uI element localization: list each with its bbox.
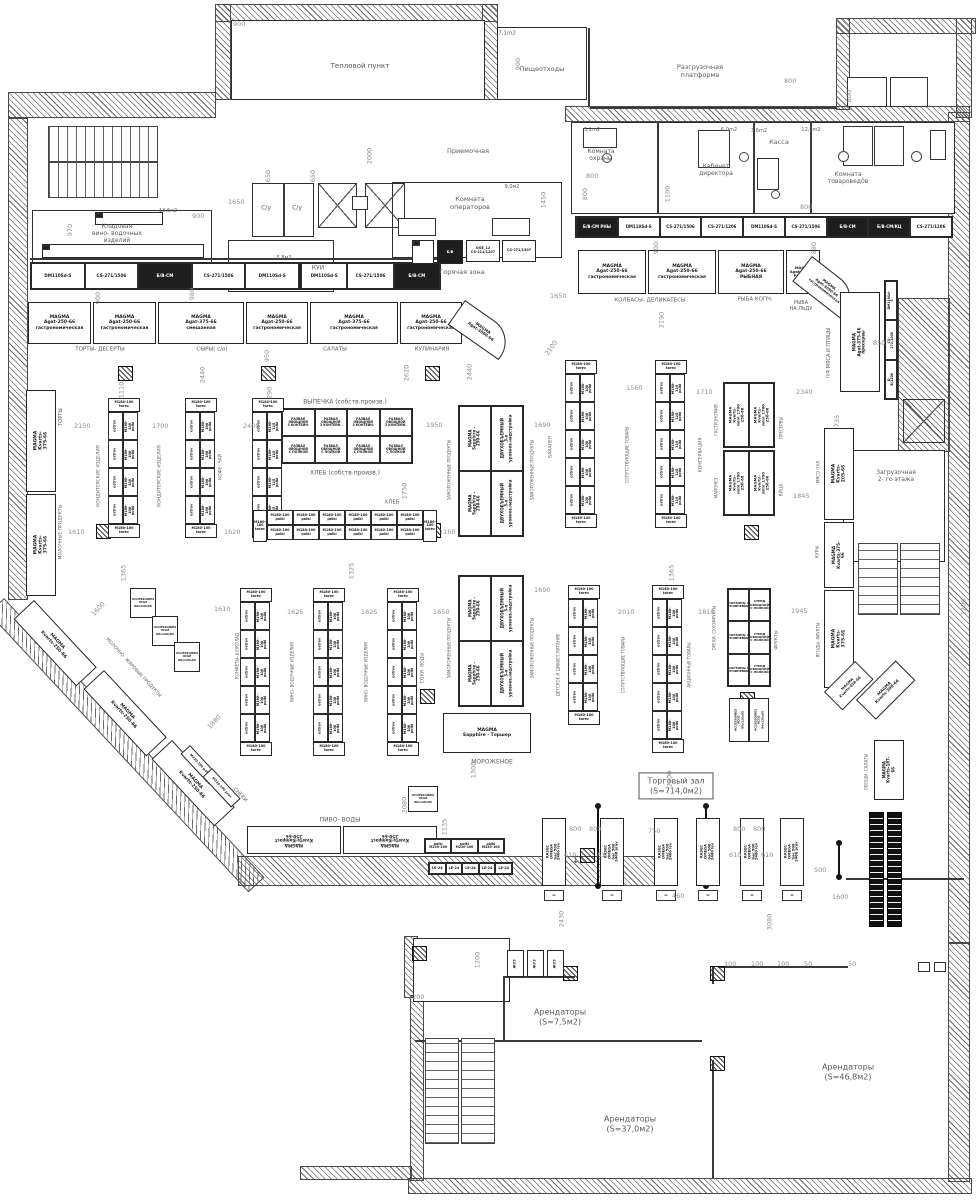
staircase <box>425 1038 459 1144</box>
dimension-label: 950 <box>263 350 271 362</box>
shelf-cell <box>413 241 420 246</box>
dimension-label: 1560 <box>626 384 643 392</box>
gondola-cell-label: M180-100 polki <box>202 504 213 517</box>
structural-column <box>744 525 759 540</box>
gondola-endcap: M180-100 torec <box>108 398 140 412</box>
shelf-cell: CS-271/1206 <box>910 217 952 237</box>
gondola-cell-label: M180-100 polki <box>323 514 342 521</box>
gondola-cell-label: M180-100 polki <box>669 607 680 620</box>
shelf-unit: MAGMA Agat-250-66 гастрономическая <box>648 250 716 294</box>
shelf-unit-label: ACCESSOIRES UCGE 80x120x85 <box>754 709 764 731</box>
shelf-unit-label: MAGMA Kvarts-375-66 <box>33 427 48 455</box>
furniture-chair <box>739 152 749 162</box>
gondola-cell-label: ostrov <box>258 448 262 460</box>
shelf-cell-label: polki M220-100 <box>429 843 447 850</box>
gondola-cell: ostrov <box>252 468 267 496</box>
shelf-unit-label: ЖУЗ <box>514 959 518 968</box>
shelf-cell: CS-271/1506 <box>192 263 246 289</box>
partition-wall <box>810 122 812 214</box>
gondola-cell-label: M180-100 polki <box>330 694 341 707</box>
plan-label: Кабинет директора <box>699 163 733 177</box>
gondola-cell-label: M180-100 polki <box>271 514 290 521</box>
shelf-unit-label: MAGMA Agat-3090-66 <box>467 318 497 343</box>
gondola-cell: M180-100 polki <box>580 486 595 514</box>
gondola-cell: ostrov <box>565 458 580 486</box>
gondola-shelf: M180-100 torecostrovM180-100 polkiostrov… <box>108 398 138 534</box>
structural-column <box>261 366 276 381</box>
gondola-endcap-label: M180-100 torec <box>254 521 266 532</box>
gondola-cell: ostrov <box>185 440 200 468</box>
gondola-cell: M180-100 polki <box>667 655 682 683</box>
gondola-endcap-label: M180-100 torec <box>424 521 436 532</box>
checkout-base: ═ <box>742 890 762 901</box>
shelf-unit: CS-271/1307 <box>502 240 536 262</box>
gondola-endcap: M180-100 torec <box>565 360 597 374</box>
gondola-endcap: M180-100 torec <box>655 514 687 528</box>
shelf-cell-label: РАЗВАЛ ОВОЩНОЙ 3 КОНТЕЙН. <box>385 418 407 428</box>
dimension-label: 2080 <box>400 797 408 814</box>
plan-label: ЯЙЦА <box>779 483 784 496</box>
gondola-cell-label: ostrov <box>661 382 665 394</box>
shelf-cell-grid: MAGMA Sapphire - 250-66ДВУХОБЪЕМНЫЙ 3-х … <box>458 405 524 537</box>
shelf-cell-label: CS-271/1506 <box>96 274 126 278</box>
gondola-cell-label: M180-125 polki <box>672 410 683 423</box>
gondola-cell-label: ostrov <box>246 694 250 706</box>
gondola-cell: ostrov <box>565 402 580 430</box>
shelf-cell-grid: РАЗВАЛ ОВОЩНОЙ 3 КОНТЕЙН.РАЗВАЛ ОВОЩНОЙ … <box>281 408 413 464</box>
gondola-cell: M180-125 polki <box>267 412 282 440</box>
shelf-cell: Б/В-СМ <box>394 263 440 289</box>
plan-label: САЛАТЫ <box>323 347 347 354</box>
shelf-cell: polki M220-100 <box>478 839 504 853</box>
gondola-cell-label: M180-125 polki <box>672 382 683 395</box>
gondola-cell: ostrov <box>565 374 580 402</box>
plan-label: 13,6м2 <box>159 208 177 214</box>
gondola-cell-label: M180-100 polki <box>271 529 290 536</box>
plan-label: КОНДИТЕРСКИЕ ИЗДЕЛИЯ <box>96 445 101 507</box>
gondola-cell-label: ostrov <box>246 722 250 734</box>
structural-column <box>563 966 578 981</box>
gondola-cell-label: M180-100 polki <box>375 514 394 521</box>
wall-segment <box>836 18 976 34</box>
plan-label: МОЛОЧНЫЕ ПРОДУКТЫ <box>58 505 63 560</box>
gondola-endcap: M180-100 torec <box>387 588 419 602</box>
gondola-cell: M180-100 polki <box>402 686 417 714</box>
shelf-unit: MAGMA Agat-250-66 РЫБНАЯ <box>718 250 784 294</box>
shelf-cell-label: ДВУХОБЪЕМНЫЙ 3-х уровнев.надстройка <box>501 585 514 632</box>
shelf-unit: OGE_12 CS-211/1207 <box>466 240 500 262</box>
dimension-label: 800 <box>586 172 598 180</box>
shelf-cell: MAGMA Kvarts-mini_1700 250-66 <box>724 451 749 515</box>
shelf-unit: ЖУЗ <box>507 950 524 977</box>
shelf-unit-label: MAGMA Agat-250-66 гастрономическая <box>101 315 149 330</box>
plan-label: 3,6m2 <box>751 128 767 134</box>
gondola-cell-label: M180-100 polki <box>404 666 415 679</box>
dimension-label: 880 <box>810 242 818 254</box>
gondola-cell: M180-125 polki <box>267 440 282 468</box>
shelf-unit: MAGMA Kvarts-187-66 <box>874 740 904 800</box>
gondola-cell-label: M180-100 polki <box>202 420 213 433</box>
shelf-unit: MAGMA Agat-3090-66 <box>448 300 516 360</box>
shelf-cell: MAGMA Sapphire - 250-66 <box>459 576 491 641</box>
gondola-cell-label: ostrov <box>319 722 323 734</box>
plan-label: ТОРТЫ <box>58 408 64 425</box>
gondola-endcap: M180-100 torec <box>652 585 684 599</box>
shelf-cell: РАЗВАЛ ОВОЩНОЙ 3 КОНТЕЙН. <box>282 409 315 436</box>
gondola-cell: M180-100 polki <box>583 599 598 627</box>
shelf-cell-grid: Б/В-СМ РНЫDM110Sd-SCS-271/1506CS-271/120… <box>575 216 953 238</box>
checkout-counter: RASEC OMEGA bac 500 2400 prav <box>780 818 804 886</box>
checkout-label: RASEC OMEGA bac 500 2400 lev <box>744 841 759 863</box>
shelf-unit-label: MAGMA Agat-250-66 гастрономическая <box>588 264 636 279</box>
furniture-desk <box>352 196 368 210</box>
dimension-label: 970 <box>66 224 74 236</box>
gondola-cell: M180-100 polki <box>255 658 270 686</box>
gondola-cell: M180-100 polki <box>583 627 598 655</box>
shelf-cell-label: LE-24 <box>498 867 509 871</box>
gondola-cell-label: M180-100 polki <box>582 382 593 395</box>
gondola-cell: M180-100 polki <box>402 714 417 742</box>
gondola-cell: M180-100 polki <box>402 602 417 630</box>
shelf-unit: ACCESSOIRES UCGE 80x120x85 <box>749 698 769 742</box>
shelf-cell: LE-24 <box>462 863 479 874</box>
dimension-label: 2440 <box>465 364 473 381</box>
shelf-cell-label: Б/В-СМ <box>408 274 425 278</box>
dimension-label: 610 <box>761 851 773 859</box>
dimension-label: 1700 <box>152 422 169 430</box>
gondola-cell-label: ostrov <box>661 410 665 422</box>
furniture-chair <box>911 151 922 162</box>
gondola-endcap-label: M180-100 torec <box>394 591 413 598</box>
gondola-cell-label: M180-100 polki <box>585 663 596 676</box>
gondola-cell-label: M180-100 polki <box>330 722 341 735</box>
gondola-endcap-label: M180-100 torec <box>320 745 339 752</box>
dimension-label: 1650 <box>228 198 245 206</box>
gondola-cell: M180-100 polki <box>580 430 595 458</box>
gondola-shelf: M180-100 torecostrovM180-125 polkiostrov… <box>655 360 685 524</box>
wall-segment <box>956 18 972 118</box>
plan-label: Горячая зона <box>439 269 484 277</box>
shelf-cell <box>96 213 103 218</box>
gondola-cell: M180-100 polki <box>583 683 598 711</box>
gondola-cell-label: ostrov <box>191 420 195 432</box>
staircase <box>48 126 158 162</box>
shelf-cell: РАЗВАЛ ОВОЩНОЙ 3 КОНТЕЙН. <box>380 409 413 436</box>
shelf-unit-label: ACCESSOIRES UCGE 80x120x85 <box>734 709 744 731</box>
plan-label: МЯСА И ПТИЦЫ <box>826 328 832 368</box>
dimension-label: 650 <box>264 170 272 182</box>
gondola-endcap-label: M180-100 torec <box>575 714 594 721</box>
dimension-label: 650 <box>309 170 317 182</box>
gondola-endcap: M180-100 torec <box>565 514 597 528</box>
gondola-cell-label: ostrov <box>319 694 323 706</box>
gondola-cell-label: ostrov <box>658 719 662 731</box>
queue-pole <box>597 806 599 886</box>
plan-label: 9,0м2 <box>505 184 520 190</box>
gondola-cell-label: M180-100 polki <box>669 635 680 648</box>
furniture-desk <box>930 130 946 160</box>
gondola-endcap: M180-100 torec <box>423 510 437 542</box>
gondola-cell: M180-125 polki <box>267 468 282 496</box>
plan-label: КУИ <box>312 264 324 271</box>
gondola-cell-label: ostrov <box>574 691 578 703</box>
shelf-unit-label: MAGMA Agat-250-66 гастрономическая <box>658 264 706 279</box>
gondola-cell-label: ostrov <box>393 666 397 678</box>
gondola-cell: M180-100 polki <box>402 658 417 686</box>
dimension-label: 1690 <box>534 421 551 429</box>
gondola-cell: ostrov <box>568 683 583 711</box>
gondola-endcap-label: M180-100 torec <box>394 745 413 752</box>
gondola-cell-label: M180-100 polki <box>582 466 593 479</box>
gondola-cell-label: ostrov <box>114 504 118 516</box>
room-outline <box>231 20 485 100</box>
gondola-cell: ostrov <box>313 658 328 686</box>
dimension-label: 1650 <box>433 608 450 616</box>
gondola-cell-label: M180-100 polki <box>330 666 341 679</box>
shelf-cell: LE-24 <box>446 863 463 874</box>
shelf-cell: КОРЗИНЫ 3 УРОВНЕВЫЕ <box>728 654 749 686</box>
furniture-desk <box>398 218 436 236</box>
gondola-cell-label: ostrov <box>393 638 397 650</box>
shelf-unit: MAGMA Kvarts-205-66 <box>824 428 854 520</box>
plan-label: КОНДИТЕРСКИЕ ИЗДЕЛИЯ <box>157 445 162 507</box>
shelf-unit-label: MAGMA Kvarts-Kompact 250-66 <box>371 833 409 847</box>
dimension-label: 1365 <box>667 565 675 582</box>
shelf-cell: РАЗВАЛ ОВОЩНОЙ С ПОЛКОЙ <box>380 436 413 463</box>
shelf-cell: КОРЗИНЫ 3 УРОВНЕВЫЕ <box>728 589 749 621</box>
gondola-cell-label: M180-100 polki <box>330 610 341 623</box>
gondola-endcap-label: M180-100 torec <box>247 591 266 598</box>
shelf-cell: РАЗВАЛ ОВОЩНОЙ С ПОЛКОЙ <box>282 436 315 463</box>
dimension-label: 1625 <box>287 608 304 616</box>
plan-label: РЫБА НА ЛЬДУ <box>790 300 813 312</box>
shelf-cell: РАЗВАЛ ОВОЩНОЙ С ПОЛКОЙ <box>347 436 380 463</box>
partition-wall <box>712 1060 714 1178</box>
gondola-cell: M180-100 polki <box>583 655 598 683</box>
dimension-label: 1610 <box>68 528 85 536</box>
shelf-cell-label: ДВУХОБЪЕМНЫЙ 3-х уровнев.надстройка <box>501 480 514 527</box>
gondola-cell: M180-100 polki <box>319 525 345 540</box>
gondola-cell-label: M180-100 polki <box>401 529 420 536</box>
elevator-shaft <box>903 399 945 443</box>
shelf-unit-label: OGE_12 CS-211/1207 <box>471 247 495 255</box>
dimension-label: 1810 <box>698 608 715 616</box>
gondola-cell: M180-100 polki <box>328 658 343 686</box>
dimension-label: 100 <box>751 960 763 968</box>
dimension-label: 850 <box>873 339 885 347</box>
plan-label: ЗАМОРОЖЕННЫЕ ПРОДУКТЫ <box>531 440 536 501</box>
shelf-cell: РАЗВАЛ ОВОЩНОЙ С ПОЛКОЙ <box>315 436 348 463</box>
gondola-cell: ostrov <box>652 711 667 739</box>
shelf-cell: Б/В-СМ РНЫ <box>576 217 618 237</box>
dimension-label: 735 <box>833 415 841 427</box>
shelf-cell-label: СТЕНД ОВОЩНОЙ С ПОЛКОЙ <box>750 665 769 674</box>
shelf-cell-label: CS-271/1206 <box>708 225 737 229</box>
gondola-cell-label: ostrov <box>571 410 575 422</box>
shelf-cell-label: DM110Sd-S <box>888 291 895 309</box>
dimension-label: 2150 <box>74 422 91 430</box>
shelf-unit: MAGMA Kvarts-375-66 <box>26 390 56 492</box>
dimension-label: 800 <box>733 825 745 833</box>
shelf-cell-grid <box>412 240 434 264</box>
shelf-unit-label: MAGMA Agat-375-66 смешанная <box>185 315 216 330</box>
shelf-cell: DM110Sd-S <box>245 263 299 289</box>
gondola-cell-label: ostrov <box>191 476 195 488</box>
plan-label: ЗАМОРОЖЕННЫЕ ПРОДУКТЫ <box>448 440 453 501</box>
gondola-cell-label: ostrov <box>574 635 578 647</box>
shelf-unit: ЖУЗ <box>527 950 544 977</box>
plan-label: СОПУТСТВУЮЩИЕ ТОВАРЫ <box>622 637 627 694</box>
plan-label: ЗАМОРОЖЕННЫЕ ПРОДУКТЫ <box>531 618 536 679</box>
floor-plan: ↓↓↓↓↓MAGMA Agat-250-66 гастрономическаяM… <box>0 0 977 1200</box>
furniture-desk <box>874 126 904 166</box>
shelf-unit: ACCESSOIRES UCGE 80x120x85 <box>174 642 200 672</box>
gondola-cell-label: ostrov <box>393 694 397 706</box>
gondola-cell: M180-100 polki <box>319 510 345 525</box>
gondola-cell-label: M180-100 polki <box>257 610 268 623</box>
gondola-cell: M180-100 polki <box>371 510 397 525</box>
gondola-endcap-label: M180-100 torec <box>192 401 211 408</box>
wall-segment <box>948 942 970 1182</box>
gondola-cell: ostrov <box>240 630 255 658</box>
dimension-label: 2620 <box>402 365 410 382</box>
gondola-cell: M180-100 polki <box>397 510 423 525</box>
gondola-endcap: M180-100 torec <box>568 585 600 599</box>
shelf-unit: MAGMA Agat-375-66 смешанная <box>158 302 244 344</box>
shelf-cell: ДВУХОБЪЕМНЫЙ 3-х уровнев.надстройка <box>491 471 523 536</box>
gondola-endcap: M180-100 torec <box>568 711 600 725</box>
gondola-cell: ostrov <box>387 714 402 742</box>
gondola-cell: M180-100 polki <box>267 525 293 540</box>
plan-label: 12,6m2 <box>801 127 820 133</box>
gondola-cell: ostrov <box>185 468 200 496</box>
shelf-cell-label: MAGMA Sapphire - 250-66 <box>469 489 482 519</box>
gondola-endcap-label: M180-100 torec <box>575 588 594 595</box>
shelf-unit: MAGMA Kvarts-Kompact 250-66 <box>343 826 437 854</box>
plan-label: ВИНО- ВОДОЧНЫЕ ИЗДЕЛИЯ <box>365 642 370 702</box>
dimension-label: 800 <box>845 90 853 102</box>
gondola-cell-label: M180-100 polki <box>401 514 420 521</box>
plan-label: АКЦИОННЫЕ ТОВАРЫ <box>688 642 693 687</box>
plan-label: БАКАЛЕЯ <box>548 436 553 458</box>
shelf-unit-label: ACCESSOIRES UCGE 80x120x85 <box>412 794 434 804</box>
plan-label: ВИНО- ВОДОЧНЫЕ ИЗДЕЛИЯ <box>291 642 296 702</box>
plan-label: С/у <box>292 204 302 211</box>
plan-label: Торговый зал (S=714,0м2) <box>639 772 714 799</box>
checkout-label: RASEC OMEGA bac 500 2400 lev <box>700 841 715 863</box>
gondola-cell-label: ostrov <box>114 420 118 432</box>
shelf-unit: Б/В <box>437 240 463 264</box>
gondola-cell: ostrov <box>652 655 667 683</box>
dimension-label: 900 <box>514 58 522 70</box>
dimension-label: 900 <box>192 212 204 220</box>
gondola-cell-label: M180-125 polki <box>269 420 280 433</box>
shelf-cell-label: MAGMA Sapphire - 250-66 <box>469 594 482 624</box>
dimension-label: 1450 <box>539 192 547 209</box>
structural-column <box>425 366 440 381</box>
gondola-shelf: M180-100 torecostrovM180-100 polkiostrov… <box>652 585 682 749</box>
gondola-shelf: M180-100 torecM180-100 polkiM180-100 pol… <box>253 510 433 540</box>
gondola-cell: ostrov <box>313 602 328 630</box>
shelf-cell: LE-24 <box>479 863 496 874</box>
dimension-label: 1750 <box>400 483 408 500</box>
gondola-cell-label: M180-100 polki <box>404 610 415 623</box>
gondola-endcap: M180-100 torec <box>652 739 684 753</box>
gondola-cell: ostrov <box>313 630 328 658</box>
plan-label: Комната охраны <box>587 148 614 162</box>
shelf-cell-label: DM110Sd-S <box>311 274 338 278</box>
gondola-cell-label: ostrov <box>246 638 250 650</box>
gondola-cell: M180-125 polki <box>670 458 685 486</box>
staircase <box>858 543 898 615</box>
gondola-cell-label: ostrov <box>571 438 575 450</box>
gondola-cell-label: M180-100 polki <box>257 666 268 679</box>
gondola-cell: ostrov <box>240 714 255 742</box>
shelf-unit-label: MAGMA Kvarts-375-66 <box>831 625 846 653</box>
gondola-cell: M180-100 polki <box>397 525 423 540</box>
shelf-cell-label: РАЗВАЛ ОВОЩНОЙ С ПОЛКОЙ <box>353 445 373 455</box>
gondola-endcap-label: M180-100 torec <box>662 517 681 524</box>
plan-label: Комната товаровед0в <box>828 171 869 185</box>
shelf-cell-label: CS-271/1206 <box>917 225 946 229</box>
dimension-label: 900 <box>94 292 102 304</box>
gondola-cell-label: ostrov <box>258 476 262 488</box>
queue-pole <box>838 843 840 877</box>
gondola-cell-label: M180-100 polki <box>257 638 268 651</box>
wall-segment <box>300 1166 412 1180</box>
gondola-cell-label: M180-100 polki <box>323 529 342 536</box>
structural-column <box>710 1056 725 1071</box>
dimension-label: 1200 <box>959 599 967 616</box>
plan-label: П/Ф <box>827 370 832 378</box>
gondola-cell-label: M180-100 polki <box>404 722 415 735</box>
dimension-label: 500 <box>814 866 826 874</box>
gondola-cell-label: ostrov <box>114 476 118 488</box>
shelf-unit: MAGMA Kvarts-375-66 <box>824 522 854 588</box>
gondola-cell: M180-100 polki <box>580 458 595 486</box>
plan-label: ПРЕСЕРВЫ <box>780 417 785 439</box>
shelf-unit-label: CS-271/1307 <box>507 249 531 253</box>
gondola-cell-label: M180-100 polki <box>257 694 268 707</box>
gondola-cell: M180-100 polki <box>267 510 293 525</box>
shelf-cell: polki M220-100 <box>425 839 451 853</box>
dimension-label: 800 <box>589 825 601 833</box>
gondola-cell: M180-100 polki <box>293 525 319 540</box>
gondola-endcap-label: M180-100 torec <box>247 745 266 752</box>
gondola-cell: ostrov <box>655 486 670 514</box>
dimension-label: 900 <box>233 20 245 28</box>
gondola-cell: M180-100 polki <box>580 374 595 402</box>
gondola-cell-label: M180-125 polki <box>672 494 683 507</box>
shelf-cell-label: MAGMA Sapphire - 250-66 <box>469 659 482 689</box>
dimension-label: 1845 <box>793 492 810 500</box>
gondola-endcap: M180-100 torec <box>185 398 217 412</box>
gondola-cell: ostrov <box>240 686 255 714</box>
gondola-cell-label: M180-100 polki <box>125 420 136 433</box>
gondola-cell-label: ostrov <box>658 691 662 703</box>
dimension-label: 800 <box>753 825 765 833</box>
gondola-cell: M180-100 polki <box>200 412 215 440</box>
gondola-endcap-label: M180-100 torec <box>115 401 134 408</box>
gondola-cell: ostrov <box>387 630 402 658</box>
wall-segment <box>408 1178 972 1194</box>
dimension-label: 1160 <box>439 528 456 536</box>
shelf-cell: CS-271/1506 <box>785 217 827 237</box>
structural-column <box>118 366 133 381</box>
gondola-cell-label: M180-100 polki <box>202 476 213 489</box>
gondola-cell: M180-100 polki <box>200 440 215 468</box>
gondola-cell: ostrov <box>568 599 583 627</box>
